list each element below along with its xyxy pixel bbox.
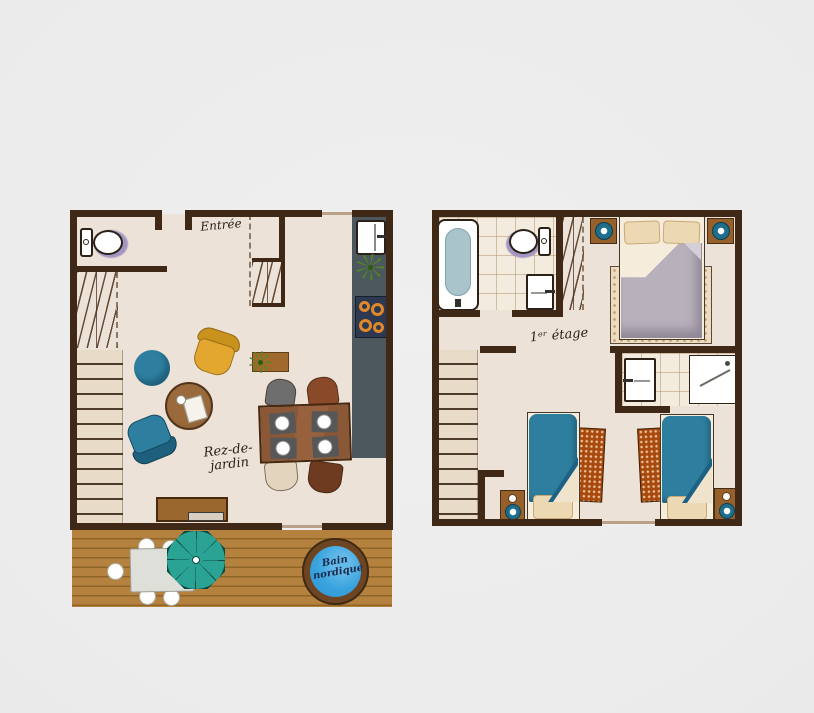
toilet-bowl xyxy=(93,230,123,255)
staircase xyxy=(74,350,123,523)
pouf xyxy=(134,350,170,386)
burner xyxy=(373,322,384,333)
duvet xyxy=(621,243,702,338)
wall xyxy=(480,346,516,353)
wall xyxy=(70,210,155,217)
patio-door-line xyxy=(282,525,322,528)
hot-tub: Bain nordique xyxy=(302,538,369,605)
toilet-bowl xyxy=(509,229,538,254)
wall xyxy=(70,210,77,530)
shower-diagonal xyxy=(700,369,731,387)
window-line xyxy=(602,521,655,524)
bed-single xyxy=(527,412,580,523)
wall xyxy=(70,523,282,530)
outdoor-chair xyxy=(107,563,124,580)
faucet-icon xyxy=(455,299,461,307)
floorplan-canvas: Entrée xyxy=(0,0,814,713)
faucet-icon xyxy=(545,290,555,293)
wall xyxy=(655,519,742,526)
lamp-icon xyxy=(719,503,735,519)
nightstand xyxy=(707,218,734,244)
candle-dot xyxy=(722,492,731,501)
sink-divider xyxy=(374,224,376,251)
wall xyxy=(70,266,167,272)
sink-line xyxy=(634,380,650,382)
shower-icon xyxy=(689,355,736,404)
wall xyxy=(432,210,439,526)
wardrobe xyxy=(563,217,584,310)
candle-dot xyxy=(508,494,517,503)
lamp-icon xyxy=(712,222,730,240)
wall xyxy=(512,310,563,317)
bed-single xyxy=(660,414,714,524)
coffee-table xyxy=(165,382,213,430)
first-floor-plan: 1ᵉʳ étage xyxy=(432,210,742,526)
wall xyxy=(610,346,742,353)
stove-icon xyxy=(355,296,388,338)
faucet-icon xyxy=(623,379,633,382)
wall xyxy=(432,210,742,217)
burner xyxy=(359,301,370,312)
wall xyxy=(478,470,485,526)
pillow xyxy=(663,220,701,244)
wardrobe xyxy=(76,272,118,348)
kitchen-sink-icon xyxy=(356,220,386,255)
toilet-button xyxy=(83,239,89,245)
deck-terrace: Bain nordique xyxy=(72,530,392,607)
bathtub-icon xyxy=(437,219,479,311)
toilet-button xyxy=(541,238,547,244)
ground-floor-plan: Entrée xyxy=(70,210,393,607)
window-line xyxy=(322,212,352,215)
wall xyxy=(615,406,670,413)
parasol-center xyxy=(192,556,200,564)
lamp-icon xyxy=(595,222,613,240)
wall xyxy=(432,310,480,317)
entry-closet xyxy=(252,258,285,307)
wall xyxy=(386,210,393,530)
nightstand xyxy=(590,218,617,244)
wall xyxy=(279,210,285,258)
bathtub-water xyxy=(445,228,471,296)
burner xyxy=(359,319,372,332)
wall xyxy=(322,523,393,530)
wall xyxy=(155,210,162,230)
bed-double xyxy=(619,216,705,340)
pillow xyxy=(624,220,661,244)
wall xyxy=(615,346,622,413)
sink-icon xyxy=(526,274,554,310)
tv-icon xyxy=(188,512,224,521)
sink-icon xyxy=(624,358,656,402)
plant-icon xyxy=(249,351,271,373)
toilet-icon xyxy=(80,222,128,262)
wall xyxy=(735,210,742,526)
shelf xyxy=(252,352,289,372)
lamp-icon xyxy=(505,504,521,520)
dining-table xyxy=(258,402,352,463)
nightstand xyxy=(500,490,525,522)
burner xyxy=(371,303,384,316)
wall xyxy=(556,210,563,317)
cup xyxy=(176,395,186,405)
faucet-icon xyxy=(377,235,386,238)
toilet-icon xyxy=(506,222,558,260)
parasol-icon xyxy=(167,531,225,589)
tv-stand xyxy=(156,497,228,522)
wall xyxy=(432,519,602,526)
shower-head-dot xyxy=(725,361,730,366)
staircase xyxy=(436,350,478,522)
plant-icon xyxy=(356,254,384,280)
